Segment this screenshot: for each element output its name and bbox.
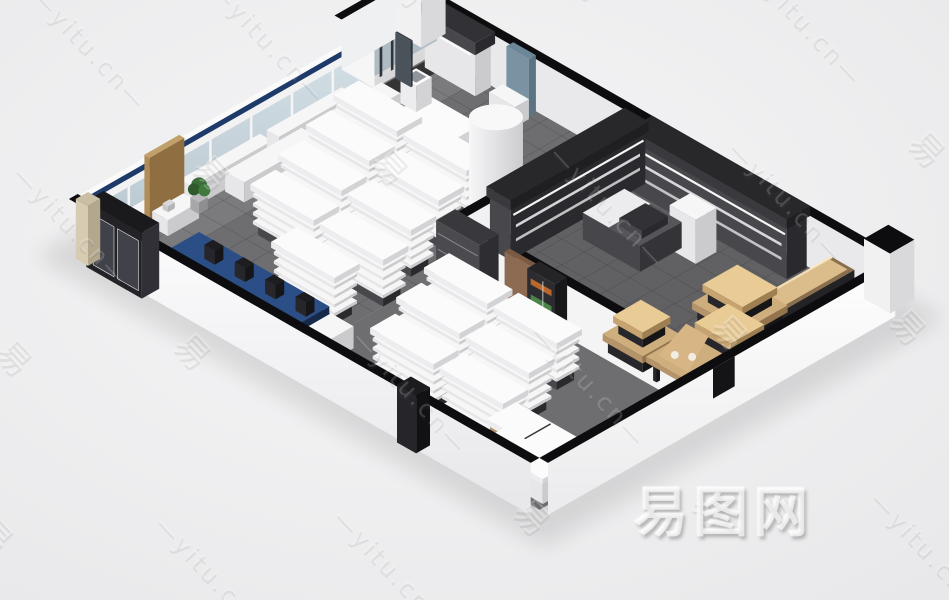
watermark-logo: 易图网 (634, 468, 814, 547)
roof-vent-block (864, 225, 914, 314)
glass-door-leaf (395, 31, 412, 87)
store-floorplan-render: 易易—yitu.cn——yitu.cn—易易—yitu.cn——yitu.cn—… (0, 0, 949, 600)
